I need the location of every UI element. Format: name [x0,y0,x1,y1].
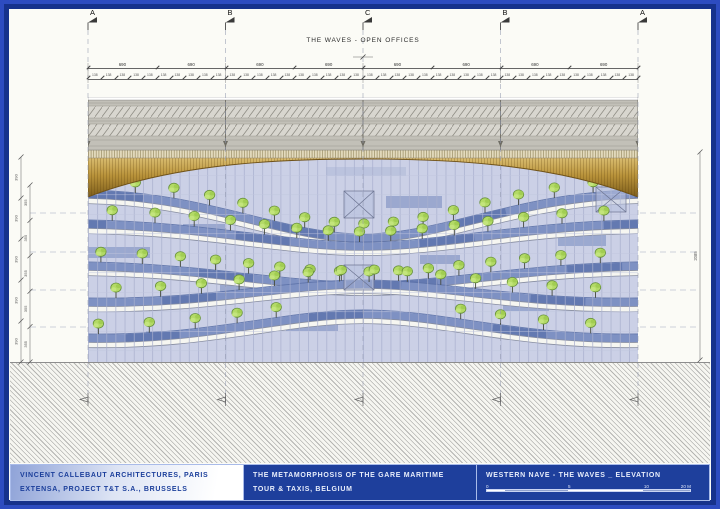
dim-value: 138 [102,73,116,77]
architect-line1: VINCENT CALLEBAUT ARCHITECTURES, PARIS [20,469,234,483]
ground-hatch [10,362,710,463]
dim-value: 138 [487,73,501,77]
dim-value: 138 [418,73,432,77]
architect-line2: EXTENSA, PROJECT T&T S.A., BRUSSELS [20,483,234,497]
dim-value: 138 [597,73,611,77]
dim-value: 138 [239,73,253,77]
dim-value: 690 [501,62,570,67]
dim-value: 138 [322,73,336,77]
project-cell: THE METAMORPHOSIS OF THE GARE MARITIME T… [244,465,477,500]
dim-value: 138 [294,73,308,77]
ribbed-band [88,150,638,158]
dim-value: 138 [143,73,157,77]
dim-value: 138 [501,73,515,77]
dim-value: 138 [267,73,281,77]
dim-value: 138 [253,73,267,77]
dim-value: 138 [281,73,295,77]
title-block: VINCENT CALLEBAUT ARCHITECTURES, PARIS E… [10,464,710,501]
scale-bar: 0 5 10 20 M [486,485,691,496]
dim-value: 690 [569,62,638,67]
dim-value: 138 [198,73,212,77]
dim-value: 138 [349,73,363,77]
dim-value: 138 [157,73,171,77]
drawing-sheet: ABCBA3903903903903903553553553553552085 … [0,0,720,509]
dimension-row-main: 690690690690690690690690 [88,62,638,72]
dim-value: 138 [308,73,322,77]
scale-bar-segments [486,489,691,492]
sheet-title: WESTERN NAVE - THE WAVES _ ELEVATION [486,469,700,483]
dim-value: 138 [611,73,625,77]
dim-value: 690 [226,62,295,67]
scale-labels: 0 5 10 20 M [486,483,691,488]
dim-value: 138 [446,73,460,77]
dim-value: 138 [363,73,377,77]
dim-value: 138 [129,73,143,77]
dim-value: 138 [569,73,583,77]
dim-value: 138 [184,73,198,77]
dim-value: 690 [157,62,226,67]
dim-value: 138 [542,73,556,77]
drawing-title: THE WAVES - OPEN OFFICES [238,37,488,44]
dim-value: 138 [404,73,418,77]
dim-value: 690 [432,62,501,67]
project-line1: THE METAMORPHOSIS OF THE GARE MARITIME [253,469,467,483]
dim-value: 138 [583,73,597,77]
dim-value: 138 [226,73,240,77]
dim-value: 138 [528,73,542,77]
dim-value: 138 [171,73,185,77]
building-elevation [88,97,638,362]
dim-value: 138 [514,73,528,77]
dim-value: 138 [473,73,487,77]
dim-value: 138 [459,73,473,77]
sheet-cell: WESTERN NAVE - THE WAVES _ ELEVATION 0 5… [477,465,709,500]
dim-value: 138 [212,73,226,77]
dim-value: 138 [624,73,638,77]
dim-value: 138 [336,73,350,77]
dim-value: 138 [116,73,130,77]
dimension-row-sub: 1381381381381381381381381381381381381381… [88,73,638,82]
dim-value: 138 [556,73,570,77]
dim-value: 138 [432,73,446,77]
dim-value: 138 [88,73,102,77]
dim-value: 138 [391,73,405,77]
project-line2: TOUR & TAXIS, BELGIUM [253,483,467,497]
dim-value: 138 [377,73,391,77]
roof-band [88,97,638,150]
dim-value: 690 [363,62,432,67]
dim-value: 690 [294,62,363,67]
architect-cell: VINCENT CALLEBAUT ARCHITECTURES, PARIS E… [11,465,244,500]
dim-value: 690 [88,62,157,67]
